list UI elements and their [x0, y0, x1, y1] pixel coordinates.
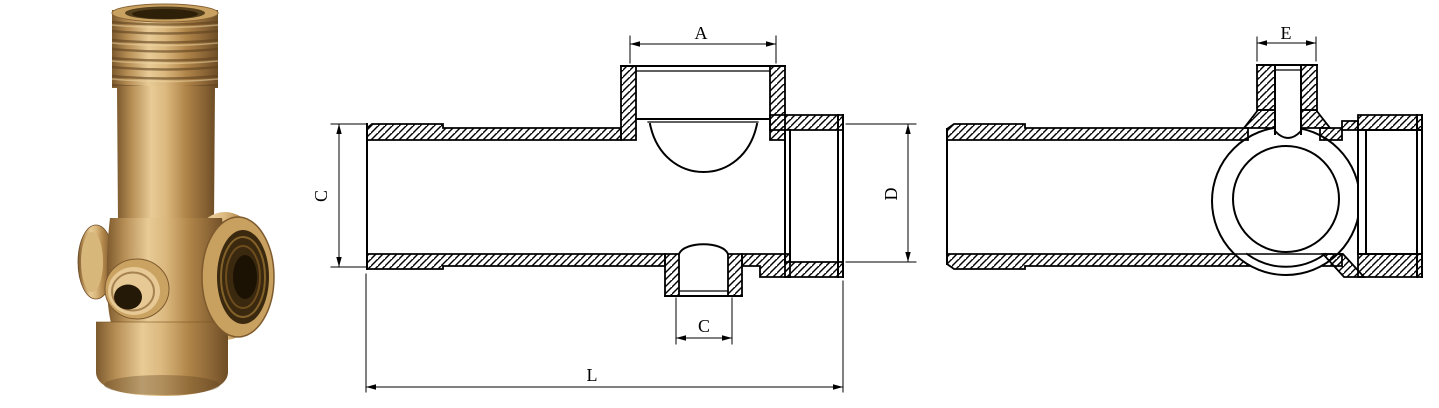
front-bottom-port-arch	[679, 244, 728, 254]
photo-front-port-bore	[114, 285, 142, 310]
dim-label-e: E	[1281, 23, 1292, 43]
side-top-band-segment	[1320, 128, 1342, 140]
technical-drawing-canvas: A C D C	[0, 0, 1439, 408]
dim-label-c-bottom: C	[698, 316, 710, 336]
photo-base-shadow	[104, 375, 220, 395]
side-outlet-interior	[1359, 131, 1421, 253]
front-section-view: A C D C	[311, 23, 916, 392]
side-top-step	[1342, 121, 1358, 130]
arrowhead	[676, 335, 686, 340]
arrowhead	[630, 41, 640, 47]
front-valve-seat-dome	[650, 124, 757, 172]
front-hatched-walls	[367, 66, 843, 296]
front-bottom-wall	[367, 254, 665, 269]
arrowhead	[336, 257, 341, 267]
arrowhead	[336, 124, 341, 134]
dim-label-d: D	[881, 188, 901, 201]
photo-top-bore	[132, 9, 198, 19]
front-bottom-port-left-wall	[665, 254, 679, 296]
side-gauge-port-right-wall	[1301, 65, 1317, 110]
dimension-L	[366, 274, 843, 392]
sphere-chamber-inner-circle	[1233, 146, 1339, 252]
arrowhead	[766, 41, 776, 47]
dim-label-a: A	[695, 23, 708, 43]
side-gauge-port-left-wall	[1257, 65, 1275, 110]
photo-right-port-bore	[233, 255, 257, 299]
arrowhead	[833, 384, 843, 389]
screenshot-root: A C D C	[0, 0, 1439, 408]
front-right-top-flange	[770, 115, 843, 130]
side-section-view: E	[947, 23, 1422, 277]
side-right-top-flange	[1358, 115, 1422, 130]
arrowhead	[722, 335, 732, 340]
dimension-C-left	[331, 124, 366, 267]
front-top-port-left-wall	[621, 66, 636, 140]
photo-neck	[117, 86, 215, 222]
arrowhead	[905, 124, 910, 134]
front-top-wall	[367, 124, 621, 140]
front-bottom-step	[742, 254, 790, 277]
front-bottom-port-right-wall	[728, 254, 742, 296]
side-gauge-port-passage	[1276, 70, 1300, 134]
front-right-bottom-flange	[785, 262, 843, 277]
arrowhead	[1306, 40, 1316, 45]
arrowhead	[905, 252, 910, 262]
dim-label-c-left: C	[311, 190, 331, 202]
product-photo	[78, 4, 274, 396]
arrowhead	[366, 384, 376, 389]
arrowhead	[1257, 40, 1267, 45]
side-right-bottom-flange	[1358, 254, 1422, 277]
dim-label-l: L	[587, 365, 598, 385]
photo-left-boss-face	[81, 232, 103, 292]
side-top-wall	[947, 124, 1248, 140]
